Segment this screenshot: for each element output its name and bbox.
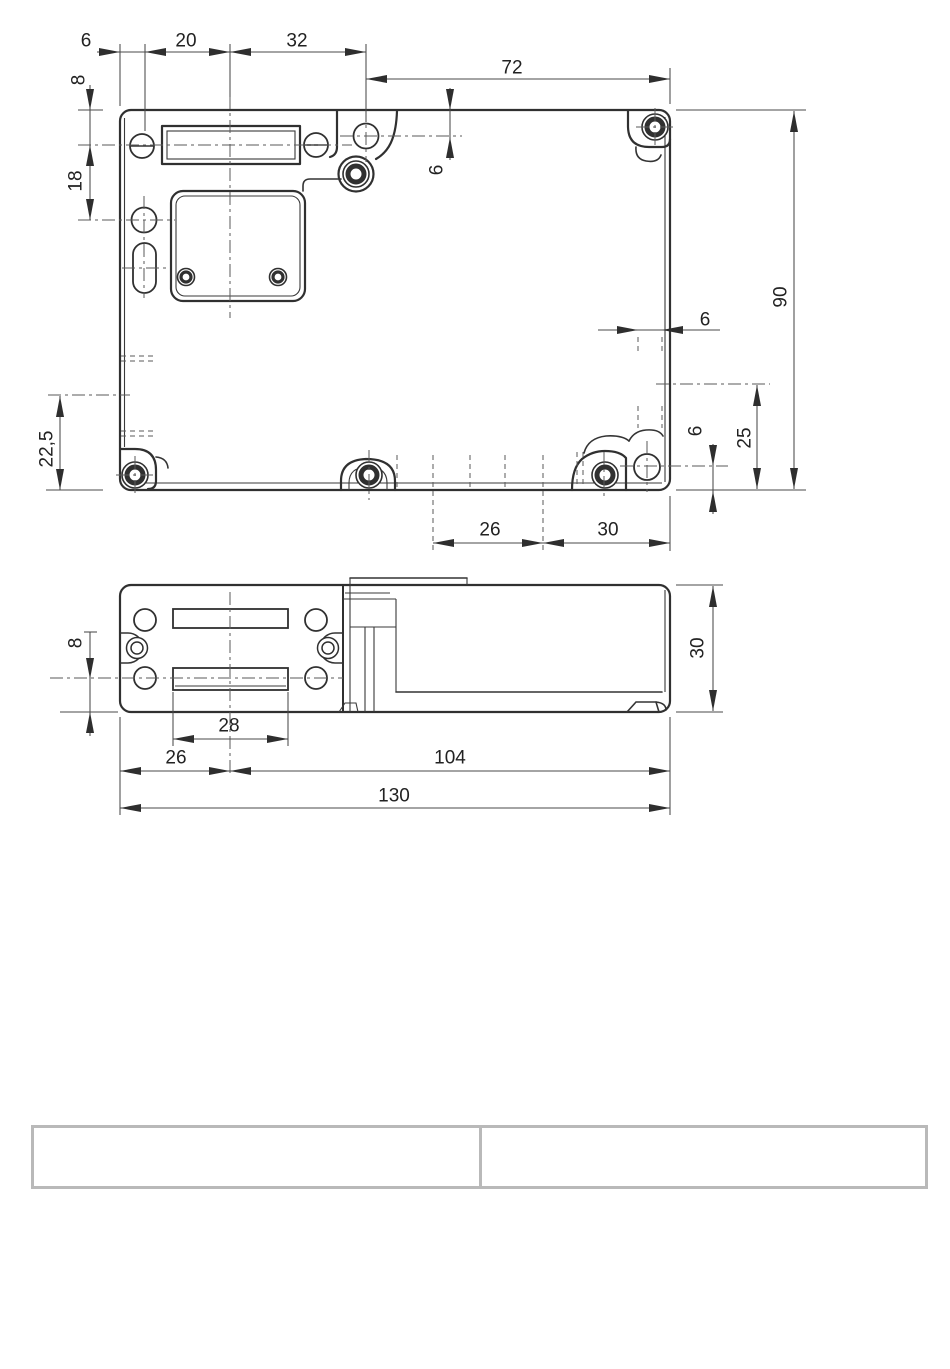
dim-top-26: 26 [479,520,500,541]
dim-top-90: 90 [771,286,792,307]
dimension-arrows-top [56,48,798,547]
dim-top-25: 25 [735,427,756,448]
dim-side-28: 28 [218,716,239,737]
dim-top-18: 18 [66,170,87,191]
dimensions-side-view: 8 28 26 104 130 30 [60,585,723,815]
dim-side-26: 26 [165,748,186,769]
corner-lug-bottom-right [572,430,663,490]
dim-top-22-5: 22,5 [37,431,58,468]
dim-top-20: 20 [175,31,196,52]
head-pocket [171,191,305,301]
foot-middle [339,703,358,712]
dim-side-104: 104 [434,748,466,769]
dim-top-8: 8 [69,75,90,86]
spec-table-cell-right [482,1128,925,1186]
corner-lug-top-right [628,111,670,161]
center-lines-top-view [48,96,770,500]
dim-top-6-lug: 6 [427,165,448,176]
dim-top-6-slot: 6 [700,310,711,331]
dim-side-8: 8 [66,638,87,649]
dim-top-32: 32 [286,31,307,52]
dim-top-6-left: 6 [81,31,92,52]
lug-bottom-middle [341,459,395,490]
hidden-slot-marks [121,337,662,550]
dim-side-130: 130 [378,786,410,807]
side-view [50,578,670,777]
foot-right [627,702,659,712]
dim-side-30: 30 [688,637,709,658]
dim-top-6-corner: 6 [686,426,707,437]
technical-drawing: 6 20 32 72 8 18 6 90 6 25 6 22,5 26 30 [0,0,950,900]
spec-table [31,1125,928,1189]
dim-top-30: 30 [597,520,618,541]
spec-table-cell-left [34,1128,479,1186]
side-outline [120,585,670,712]
dim-top-72: 72 [501,58,522,79]
top-view [48,96,770,550]
